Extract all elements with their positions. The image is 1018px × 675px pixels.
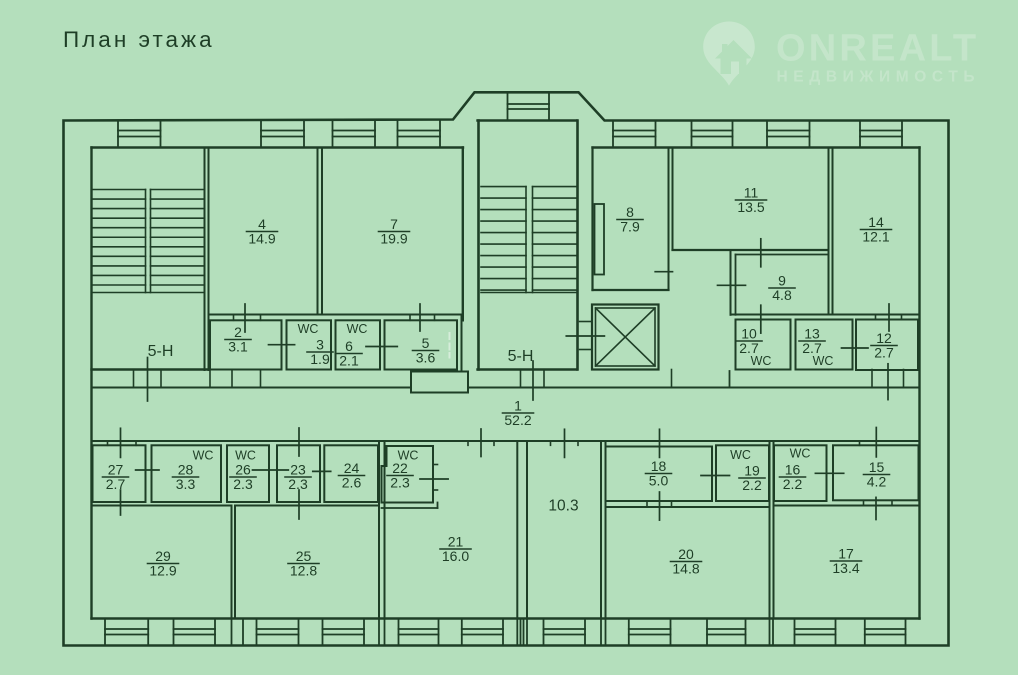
svg-text:WC: WC (298, 322, 319, 336)
svg-text:WC: WC (790, 447, 811, 461)
svg-text:5-Н: 5-Н (508, 348, 534, 365)
svg-text:1.9: 1.9 (310, 351, 330, 367)
svg-text:2.2: 2.2 (742, 477, 762, 493)
svg-text:4.8: 4.8 (772, 287, 792, 303)
svg-text:2.7: 2.7 (106, 476, 126, 492)
svg-text:5.0: 5.0 (649, 473, 669, 489)
svg-text:2.1: 2.1 (339, 353, 359, 369)
svg-text:2.3: 2.3 (288, 476, 308, 492)
svg-text:3.3: 3.3 (176, 476, 196, 492)
svg-text:WC: WC (235, 449, 256, 463)
svg-text:WC: WC (813, 354, 834, 368)
svg-text:5-Н: 5-Н (148, 343, 174, 360)
svg-text:ONREALT: ONREALT (776, 28, 979, 70)
svg-text:WC: WC (398, 449, 419, 463)
svg-text:3.6: 3.6 (416, 350, 436, 366)
svg-text:13.5: 13.5 (737, 199, 764, 215)
svg-text:12.1: 12.1 (862, 229, 889, 245)
svg-text:2.6: 2.6 (342, 475, 362, 491)
svg-text:4.2: 4.2 (867, 474, 887, 490)
svg-text:12.8: 12.8 (290, 563, 317, 579)
svg-text:14.8: 14.8 (672, 561, 699, 577)
svg-text:WC: WC (193, 449, 214, 463)
svg-text:НЕДВИЖИМОСТЬ: НЕДВИЖИМОСТЬ (777, 69, 981, 86)
svg-text:14.9: 14.9 (248, 231, 275, 247)
svg-text:2.2: 2.2 (783, 476, 803, 492)
svg-text:WC: WC (347, 322, 368, 336)
svg-text:План этажа: План этажа (63, 27, 215, 52)
svg-text:WC: WC (751, 354, 772, 368)
svg-text:52.2: 52.2 (504, 412, 531, 428)
svg-text:3.1: 3.1 (228, 339, 248, 355)
svg-text:16.0: 16.0 (442, 548, 469, 564)
svg-text:7.9: 7.9 (620, 219, 640, 235)
svg-text:19.9: 19.9 (380, 231, 407, 247)
svg-text:2.3: 2.3 (233, 476, 253, 492)
svg-text:2.3: 2.3 (390, 475, 410, 491)
svg-text:13.4: 13.4 (832, 560, 859, 576)
svg-text:WC: WC (730, 448, 751, 462)
svg-text:10.3: 10.3 (548, 498, 578, 515)
svg-text:12.9: 12.9 (149, 563, 176, 579)
svg-text:2.7: 2.7 (874, 345, 894, 361)
